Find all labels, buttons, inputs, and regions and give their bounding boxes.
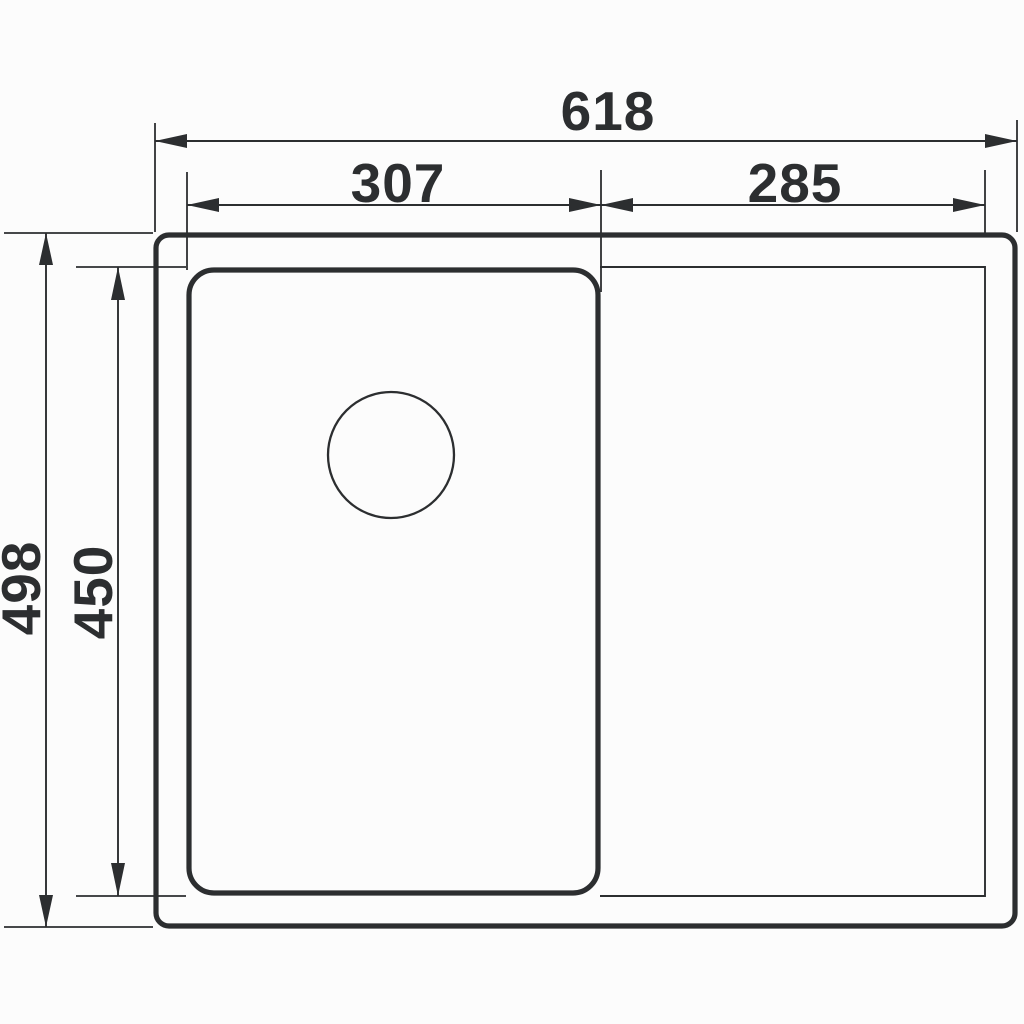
label-overall-depth: 498 — [0, 541, 52, 636]
label-drainer-width: 285 — [748, 152, 843, 214]
label-bowl-depth: 450 — [62, 545, 124, 640]
sink-dimension-drawing: 618 307 285 498 450 — [0, 0, 1024, 1024]
label-overall-width: 618 — [561, 80, 656, 142]
label-bowl-width: 307 — [351, 152, 446, 214]
